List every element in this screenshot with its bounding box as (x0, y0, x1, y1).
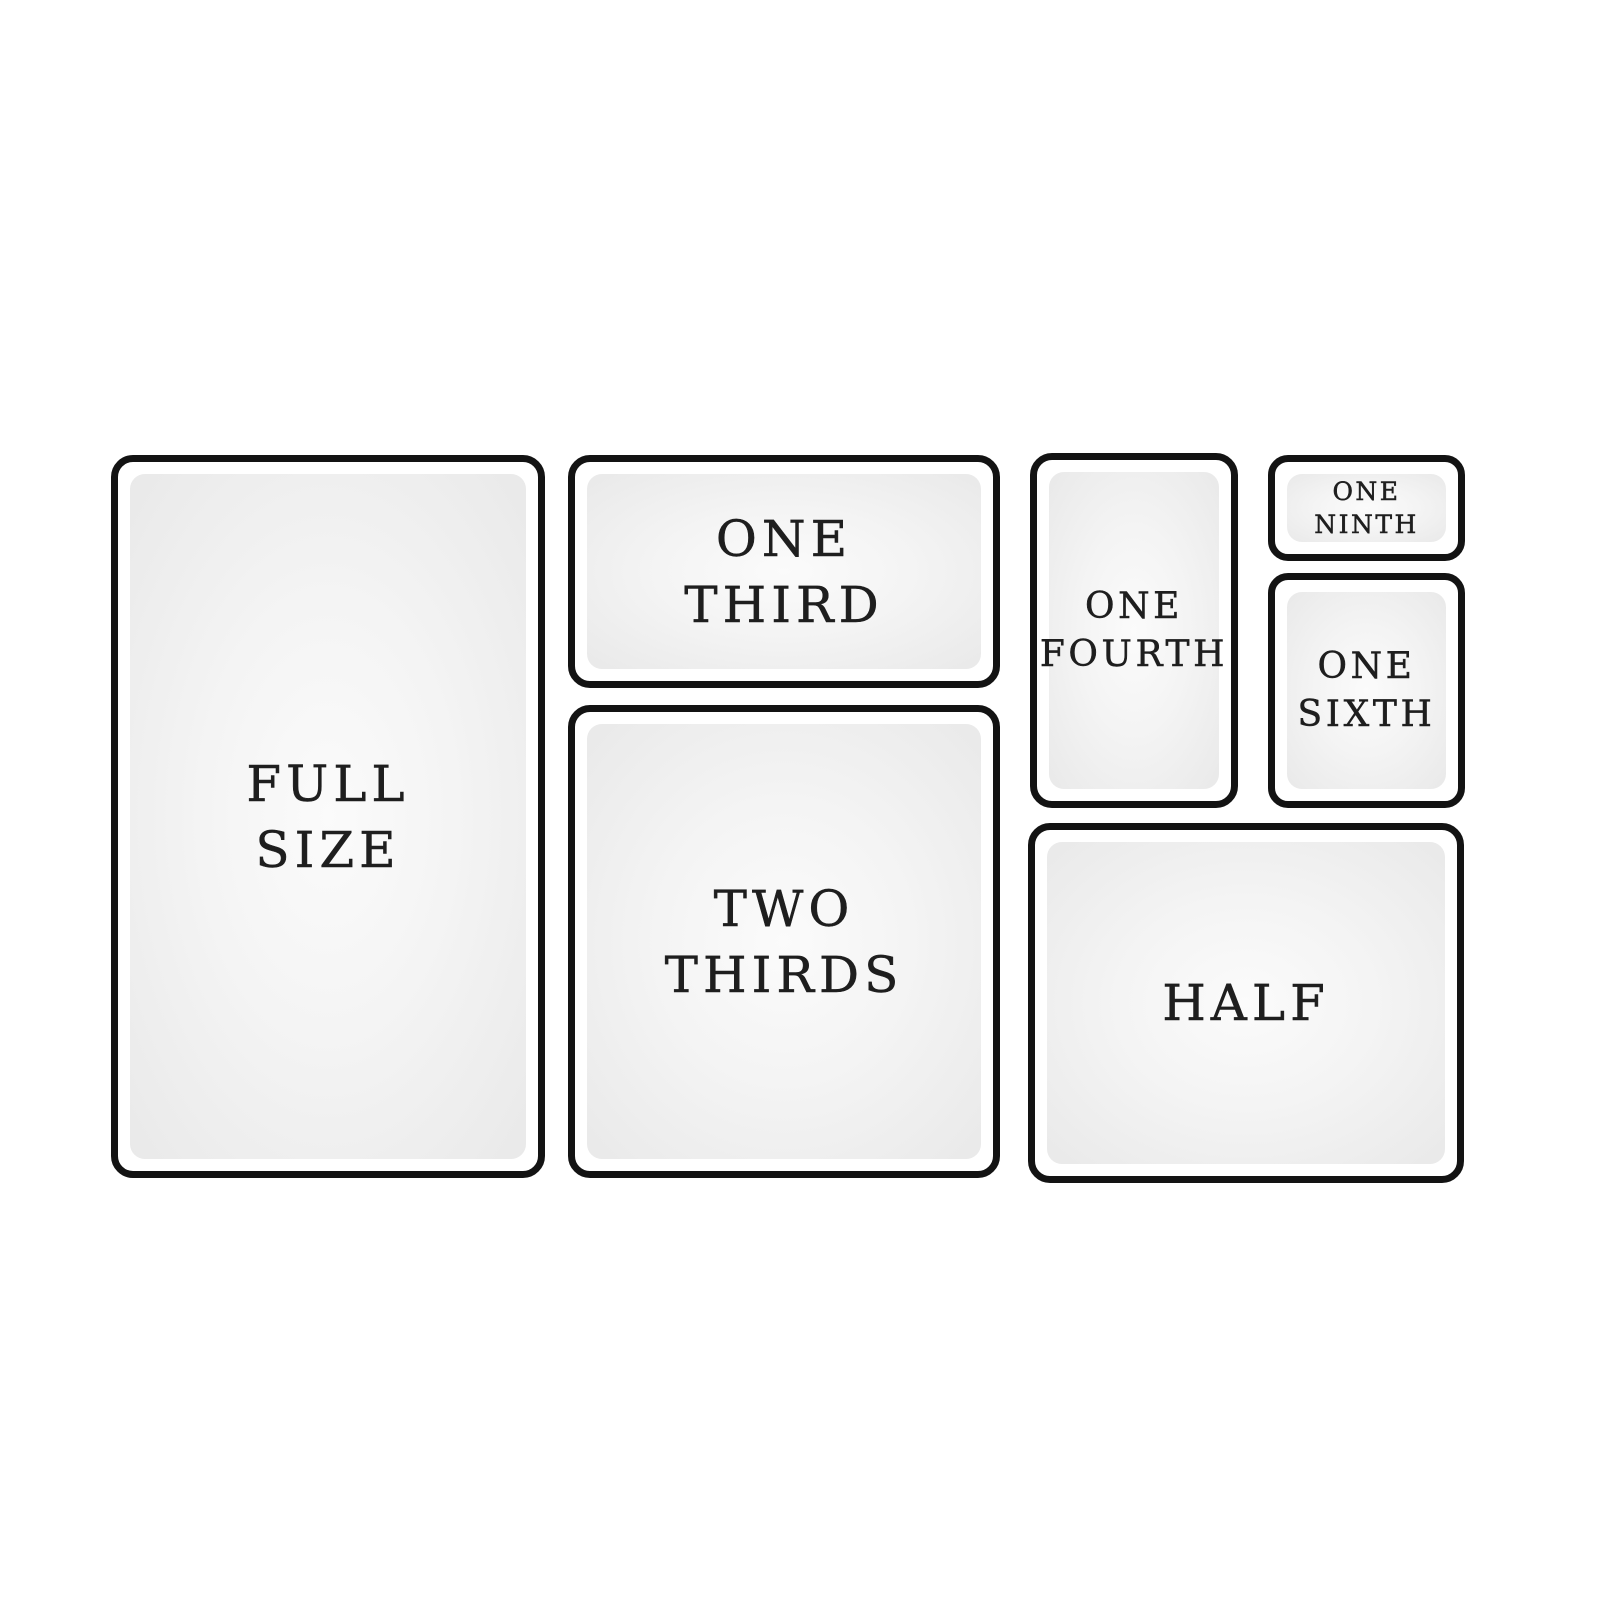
panel-label: ONE NINTH (1275, 462, 1458, 554)
panel-half: HALF (1028, 823, 1464, 1183)
panel-label: ONE FOURTH (1037, 460, 1231, 801)
panel-label: HALF (1035, 830, 1457, 1176)
label-line: SIZE (255, 817, 400, 883)
panel-one-fourth: ONE FOURTH (1030, 453, 1238, 808)
panel-full-size: FULL SIZE (111, 455, 545, 1178)
label-line: ONE (716, 506, 852, 572)
panel-label: FULL SIZE (118, 462, 538, 1171)
label-line: SIXTH (1298, 691, 1436, 739)
label-line: HALF (1162, 970, 1330, 1036)
panel-label: ONE THIRD (575, 462, 993, 681)
label-line: THIRD (684, 572, 883, 638)
label-line: ONE (1317, 643, 1415, 691)
panel-label: ONE SIXTH (1275, 580, 1458, 801)
panel-two-thirds: TWO THIRDS (568, 705, 1000, 1178)
pan-size-diagram: FULL SIZE ONE THIRD TWO THIRDS ONE FOURT… (0, 0, 1600, 1600)
label-line: FULL (246, 751, 409, 817)
panel-label: TWO THIRDS (575, 712, 993, 1171)
label-line: NINTH (1314, 508, 1419, 541)
panel-one-sixth: ONE SIXTH (1268, 573, 1465, 808)
label-line: ONE (1085, 583, 1183, 631)
label-line: TWO (714, 876, 855, 942)
panel-one-third: ONE THIRD (568, 455, 1000, 688)
label-line: FOURTH (1040, 631, 1228, 679)
label-line: THIRDS (665, 942, 904, 1008)
label-line: ONE (1332, 475, 1400, 508)
panel-one-ninth: ONE NINTH (1268, 455, 1465, 561)
